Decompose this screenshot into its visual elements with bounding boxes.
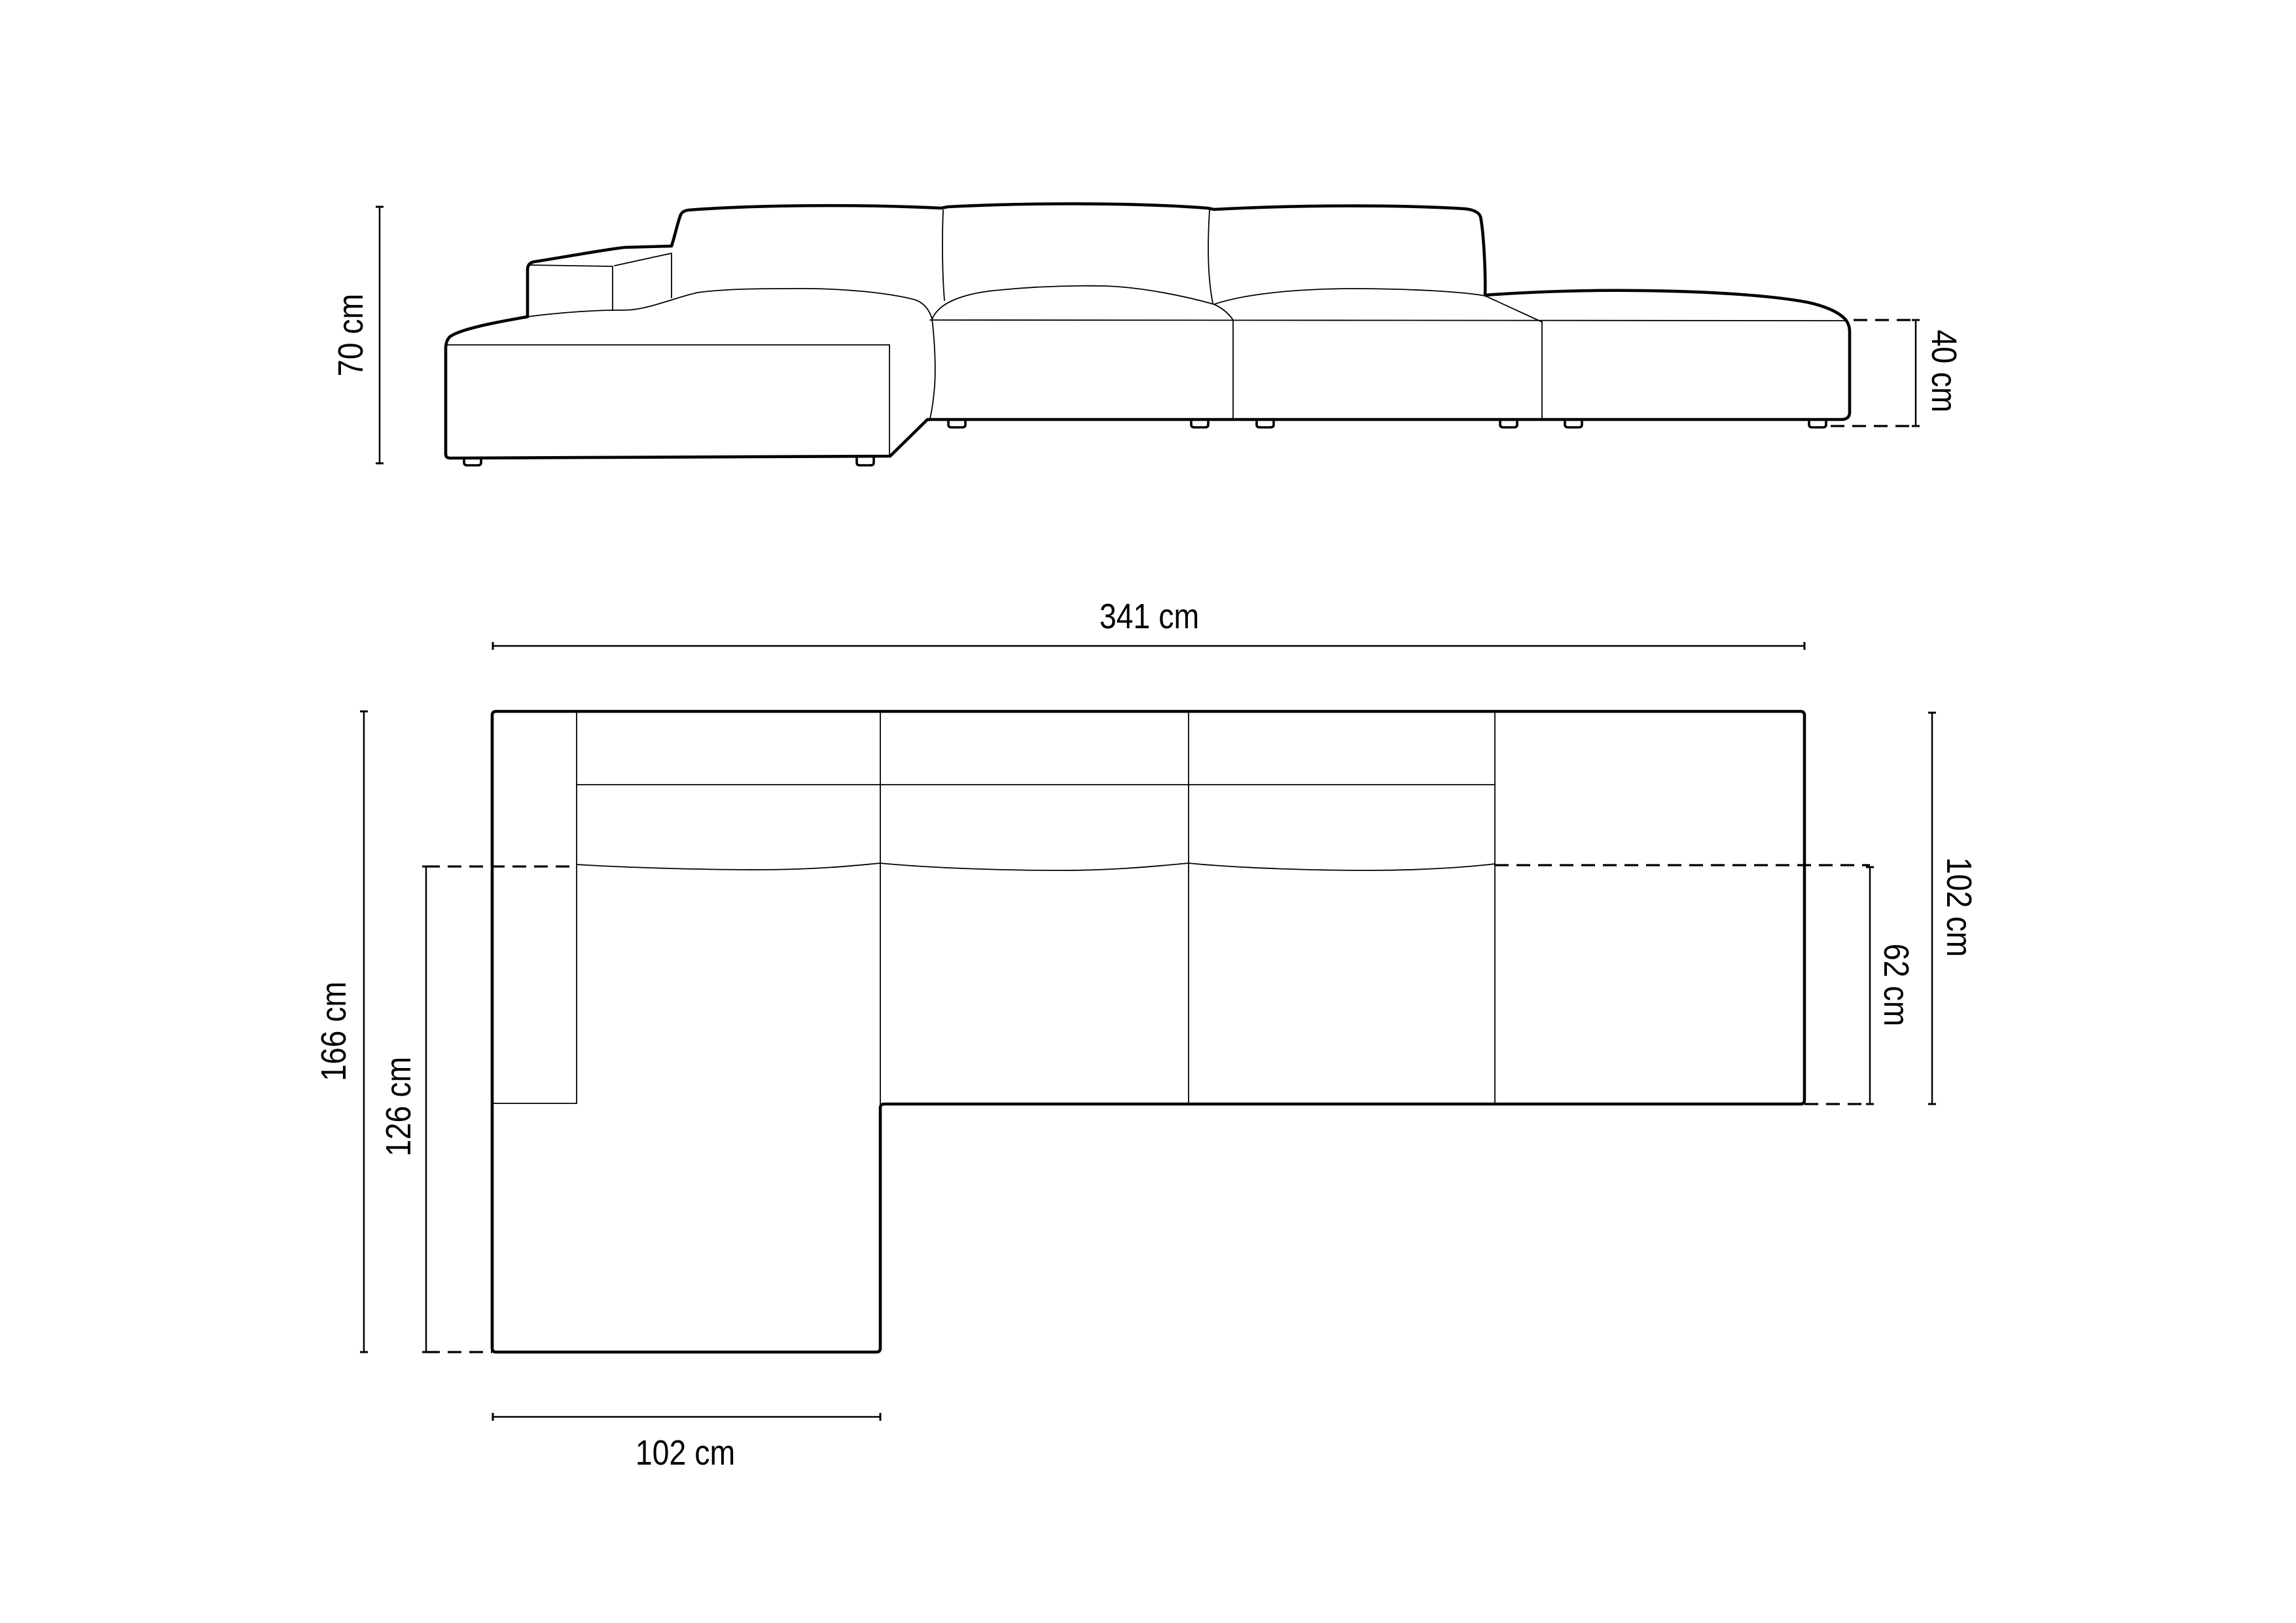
svg-text:62 cm: 62 cm: [1876, 944, 1916, 1026]
svg-text:166 cm: 166 cm: [314, 982, 353, 1081]
svg-text:341 cm: 341 cm: [1100, 596, 1199, 636]
svg-text:102 cm: 102 cm: [1939, 857, 1979, 957]
svg-text:70 cm: 70 cm: [331, 294, 370, 376]
svg-text:40 cm: 40 cm: [1924, 330, 1964, 412]
svg-text:102 cm: 102 cm: [636, 1433, 735, 1472]
svg-text:126 cm: 126 cm: [378, 1057, 418, 1156]
